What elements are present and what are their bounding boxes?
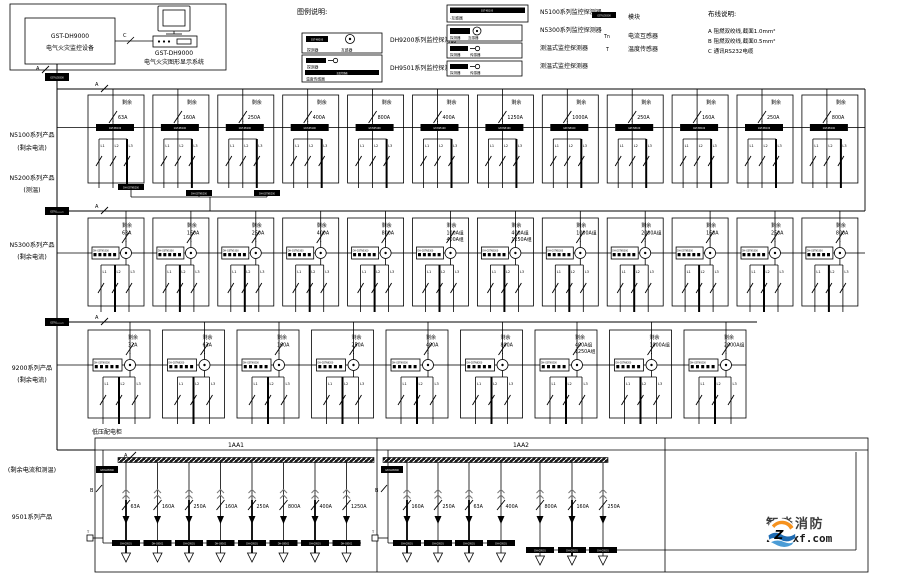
- phase-label: L2: [699, 144, 703, 148]
- side-label: (测温): [23, 186, 40, 194]
- dip-switch: [190, 365, 193, 368]
- phase-label: L3: [778, 144, 782, 148]
- bus-arrow-label: A: [95, 82, 99, 88]
- ct-symbol: Tn: [603, 34, 610, 40]
- wiring-notes-title: 布线说明:: [708, 9, 736, 18]
- device-amp: 1250A: [507, 115, 523, 121]
- device-tag: 剩余: [252, 99, 262, 106]
- dip-switch: [110, 365, 113, 368]
- device-amp: 400A: [313, 115, 326, 121]
- legend-caption: 互感器: [341, 48, 353, 53]
- down-arrow-icon: [569, 516, 576, 524]
- device-tag: 剩余: [426, 334, 436, 341]
- busbar: [118, 458, 374, 463]
- dip-switch: [168, 253, 171, 256]
- load-arrow-icon: [568, 556, 577, 565]
- dip-switch: [163, 253, 166, 256]
- dip-switch: [324, 365, 327, 368]
- branch-device-text: DH-G9501: [534, 549, 546, 552]
- load-arrow-icon: [403, 553, 412, 562]
- legend-bar-text: 温度传感器: [337, 71, 349, 75]
- phase-label: L2: [828, 144, 832, 148]
- ct-bar-text: GST-N5100: [628, 127, 641, 130]
- phase-label: L3: [137, 382, 141, 386]
- legend-label: DH9501系列监控探测器: [390, 64, 456, 72]
- ct-dot: [125, 252, 127, 254]
- watermark: Z 智淼消防 zmjaxf.com: [766, 518, 832, 545]
- device-amp: 160A: [183, 115, 196, 121]
- dip-switch: [547, 365, 550, 368]
- branch-device-text: DH-G9501: [309, 542, 321, 545]
- phase-label: L3: [211, 382, 215, 386]
- dip-switch: [567, 253, 570, 256]
- ct-bar-text: GST-N5100: [304, 127, 317, 130]
- phase-label: L2: [311, 270, 315, 274]
- load-arrow-icon: [465, 553, 474, 562]
- branch-device-text: DH-G9501: [120, 542, 132, 545]
- dip-switch: [308, 253, 311, 256]
- side-label: N5100系列产品: [9, 131, 54, 139]
- dip-switch: [293, 253, 296, 256]
- schematic-page: GST-DH9000 电气火灾监控设备 C GST-DH9000 电气火灾图形显…: [0, 0, 904, 578]
- down-arrow-icon: [498, 516, 505, 524]
- dip-switch: [158, 253, 161, 256]
- dip-switch: [408, 365, 411, 368]
- n5200-bar-text: DH-GSTN5200: [259, 192, 275, 195]
- device-amp: 800A: [378, 115, 391, 121]
- phase-label: L1: [552, 382, 556, 386]
- side-label: (剩余电流): [17, 376, 47, 384]
- phase-label: L3: [195, 270, 199, 274]
- phase-label: L3: [388, 144, 392, 148]
- device-tag: 剩余: [447, 222, 457, 229]
- ct-dot: [449, 252, 451, 254]
- dip-switch: [613, 253, 616, 256]
- bus-arrow-label: A: [124, 453, 128, 459]
- load-arrow-icon: [434, 553, 443, 562]
- device-amp: 250A: [248, 115, 261, 121]
- device-amp: 250A: [637, 115, 650, 121]
- dip-switch: [303, 253, 306, 256]
- addr-device-text: DH-GSTN9200: [169, 362, 185, 365]
- branch-amp: 400A: [506, 504, 519, 510]
- phase-label: L3: [713, 144, 717, 148]
- branch-amp: 250A: [194, 504, 207, 510]
- phase-label: L3: [435, 382, 439, 386]
- ct-dot: [190, 252, 192, 254]
- phase-label: L3: [286, 382, 290, 386]
- dip-switch: [503, 253, 506, 256]
- dip-switch: [339, 365, 342, 368]
- legend-caption: 传感器: [470, 52, 481, 57]
- branch-amp: 800A: [288, 504, 301, 510]
- ct-bar-text: GST-N5100: [239, 127, 252, 130]
- down-arrow-icon: [154, 516, 161, 524]
- phase-label: L2: [701, 270, 705, 274]
- device-tag: 剩余: [277, 334, 287, 341]
- device-tag: 剩余: [382, 222, 392, 229]
- dip-switch: [812, 253, 815, 256]
- branch-amp: 160A: [162, 504, 175, 510]
- phase-label: L2: [441, 270, 445, 274]
- ct-bar-text: GST-N5100: [758, 127, 771, 130]
- ct-dot: [576, 364, 578, 366]
- ct-dot: [384, 252, 386, 254]
- phase-label: L3: [390, 270, 394, 274]
- dip-switch: [94, 253, 97, 256]
- device-tag: 剩余: [771, 222, 781, 229]
- legend-symbols: GST-LD8300 模块 Tn 电流互感器 T 温度传感器: [592, 12, 658, 53]
- device-amp: 400A组: [511, 230, 528, 237]
- legend-caption: 探测器: [450, 35, 461, 40]
- branch-device-text: DH-G9501: [341, 542, 353, 545]
- dip-switch: [103, 253, 106, 256]
- branch-amp: 1250A: [351, 504, 367, 510]
- phase-label: L3: [585, 270, 589, 274]
- addr-device-text: DH-GSTN9200: [318, 362, 334, 365]
- device-amp: 800A: [832, 115, 845, 121]
- side-label: (剩余电流和测温): [8, 466, 56, 474]
- ct-dot: [255, 252, 257, 254]
- branch-amp: 250A: [443, 504, 456, 510]
- temp-sensor-label: T: [86, 530, 90, 534]
- load-arrow-icon: [279, 553, 288, 562]
- legend-label: DH9200系列监控探测器: [390, 36, 456, 44]
- dip-switch: [558, 253, 561, 256]
- dip-switch: [178, 253, 181, 256]
- phase-label: L1: [101, 144, 105, 148]
- device-tag: 剩余: [575, 334, 585, 341]
- watermark-logo-icon: Z: [766, 518, 796, 548]
- phase-label: L2: [439, 144, 443, 148]
- panel-module-text: GST-LD8300: [385, 469, 399, 472]
- panel-module-text: GST-LD8300: [100, 469, 114, 472]
- device-tag: 剩余: [128, 334, 138, 341]
- dip-switch: [627, 253, 630, 256]
- branch-device-text: DH-G9501: [152, 542, 164, 545]
- wiring-note-b: B 阻燃双绞线,截面0.5mm²: [708, 37, 775, 45]
- phase-label: L3: [131, 270, 135, 274]
- legend-caption: 探测器: [307, 65, 319, 70]
- phase-label: L3: [658, 382, 662, 386]
- phase-label: L1: [360, 144, 364, 148]
- branch-device-text: DH-G9501: [495, 542, 507, 545]
- wire-label: B: [90, 488, 94, 494]
- phase-label: L1: [490, 144, 494, 148]
- legend-item-dh9200: GST-N9200 探测器 互感器 DH9200系列监控探测器: [302, 33, 456, 53]
- dip-switch: [616, 365, 619, 368]
- phase-label: L3: [325, 270, 329, 274]
- branch-device-text: DH-G9501: [566, 549, 578, 552]
- addr-device-text: DH-GSTN9200: [541, 362, 557, 365]
- device-tag: 剩余: [724, 334, 734, 341]
- dip-switch: [373, 253, 376, 256]
- ct-dot: [129, 364, 131, 366]
- legend-item-n5100: GST-N5100 -互感器 N5100系列监控探测器: [447, 5, 602, 22]
- phase-label: L3: [260, 270, 264, 274]
- load-arrow-icon: [311, 553, 320, 562]
- dip-switch: [747, 253, 750, 256]
- dip-switch: [334, 365, 337, 368]
- controller-box: [25, 18, 115, 64]
- addr-device-text: DH-GSTN5300: [807, 250, 823, 253]
- ct-dot: [320, 252, 322, 254]
- dip-switch: [403, 365, 406, 368]
- controller-desc: 电气火灾监控设备: [46, 44, 94, 52]
- dip-switch: [552, 365, 555, 368]
- device-tag: 剩余: [317, 222, 327, 229]
- branch-amp: 400A: [320, 504, 333, 510]
- ct-dot: [278, 364, 280, 366]
- dip-switch: [632, 253, 635, 256]
- phase-label: L1: [295, 144, 299, 148]
- branch-device-text: DH-G9501: [432, 542, 444, 545]
- device-tag: 剩余: [203, 334, 213, 341]
- down-arrow-icon: [343, 516, 350, 524]
- phase-label: L2: [569, 144, 573, 148]
- phase-label: L2: [195, 382, 199, 386]
- branch-amp: 800A: [545, 504, 558, 510]
- dip-switch: [175, 365, 178, 368]
- phase-label: L3: [520, 270, 524, 274]
- n5200-bar-text: DH-GSTN5200: [191, 192, 207, 195]
- device-tag: 剩余: [771, 99, 781, 106]
- display-desc: 电气火灾图形显示系统: [144, 58, 204, 66]
- phase-label: L2: [571, 270, 575, 274]
- phase-label: L1: [477, 382, 481, 386]
- bus-arrow-label: A: [95, 204, 99, 210]
- phase-label: L1: [105, 382, 109, 386]
- side-label: N5200系列产品: [9, 174, 54, 182]
- phase-label: L1: [362, 270, 366, 274]
- side-label: 9200系列产品: [12, 364, 53, 372]
- dip-switch: [696, 365, 699, 368]
- phase-label: L1: [687, 270, 691, 274]
- phase-label: L2: [493, 382, 497, 386]
- phase-label: L1: [816, 270, 820, 274]
- device-tag: 剩余: [352, 334, 362, 341]
- dip-switch: [488, 365, 491, 368]
- dip-switch: [180, 365, 183, 368]
- device-tag: 剩余: [382, 99, 392, 106]
- down-arrow-icon: [280, 516, 287, 524]
- load-arrow-icon: [599, 556, 608, 565]
- addr-device-text: DH-GSTN5300: [612, 250, 628, 253]
- device-amp: 100A组: [447, 230, 464, 237]
- legend-caption: 探测器: [450, 52, 461, 57]
- dip-switch: [113, 253, 116, 256]
- branch-device-text: DH-G9501: [597, 549, 609, 552]
- load-arrow-icon: [536, 556, 545, 565]
- device-amp: 400A: [443, 115, 456, 121]
- dip-switch: [678, 253, 681, 256]
- dip-switch: [563, 365, 566, 368]
- ct-dot: [650, 364, 652, 366]
- phase-label: L1: [555, 144, 559, 148]
- phase-label: L2: [309, 144, 313, 148]
- dip-switch: [428, 253, 431, 256]
- dip-switch: [244, 365, 247, 368]
- phase-label: L1: [232, 270, 236, 274]
- wire-tick: [96, 485, 102, 492]
- temp-sensor-box: [87, 535, 93, 541]
- computer-icon: [153, 6, 197, 47]
- branch-device-text: DH-G9501: [215, 542, 227, 545]
- dip-switch: [563, 253, 566, 256]
- dip-switch: [368, 253, 371, 256]
- ct-dot: [514, 252, 516, 254]
- side-label: N5300系列产品: [9, 241, 54, 249]
- phase-label: L3: [360, 382, 364, 386]
- branch-device-text: DH-G9501: [246, 542, 258, 545]
- phase-label: L1: [179, 382, 183, 386]
- phase-label: L1: [103, 270, 107, 274]
- wire-label: B: [375, 488, 379, 494]
- phase-label: L3: [258, 144, 262, 148]
- dip-switch: [483, 253, 486, 256]
- legend-caption: 探测器: [307, 48, 319, 53]
- phase-label: L2: [181, 270, 185, 274]
- down-arrow-icon: [186, 516, 193, 524]
- addr-device-text: DH-GSTN5300: [677, 250, 693, 253]
- phase-label: L1: [814, 144, 818, 148]
- ct-bar-text: GST-N5100: [823, 127, 836, 130]
- dip-switch: [223, 253, 226, 256]
- phase-label: L1: [425, 144, 429, 148]
- panel-title: 1AA1: [228, 442, 244, 449]
- load-arrow-icon: [122, 553, 131, 562]
- phase-label: L3: [509, 382, 513, 386]
- ct-dot: [839, 252, 841, 254]
- phase-label: L1: [626, 382, 630, 386]
- phase-label: L3: [129, 144, 133, 148]
- legend-label: 测温式监控探测器: [540, 62, 588, 70]
- device-tag: 剩余: [511, 99, 521, 106]
- dip-switch: [827, 253, 830, 256]
- phase-label: L2: [504, 144, 508, 148]
- wiring-note-a: A 阻燃双绞线,截面1.0mm²: [708, 27, 775, 35]
- dip-switch: [488, 253, 491, 256]
- phase-label: L2: [115, 144, 119, 148]
- phase-label: L1: [427, 270, 431, 274]
- legend-bar-text: GST-LD8300: [597, 15, 611, 18]
- comm-wire-label: C: [123, 33, 127, 39]
- controller-block: GST-DH9000 电气火灾监控设备 C GST-DH9000 电气火灾图形显…: [10, 4, 226, 70]
- ct-dot: [725, 364, 727, 366]
- legend-label: 模块: [628, 13, 640, 21]
- dip-switch: [807, 253, 810, 256]
- device-amp: 1000A组: [576, 230, 596, 237]
- dip-switch: [318, 365, 321, 368]
- dip-switch: [329, 365, 332, 368]
- dip-switch: [632, 365, 635, 368]
- phase-label: L3: [733, 382, 737, 386]
- phase-label: L1: [752, 270, 756, 274]
- phase-label: L2: [117, 270, 121, 274]
- ct-dot: [203, 364, 205, 366]
- dip-switch: [627, 365, 630, 368]
- wire-tick: [381, 485, 387, 492]
- branch-amp: 160A: [225, 504, 238, 510]
- dip-switch: [185, 365, 188, 368]
- legend-label: N5300系列监控探测器: [540, 26, 602, 34]
- device-tag: 剩余: [836, 222, 846, 229]
- branch-amp: 250A: [257, 504, 270, 510]
- legend-label: 测温式监控探测器: [540, 44, 588, 52]
- dip-switch: [623, 253, 626, 256]
- dip-switch: [542, 365, 545, 368]
- phase-label: L2: [636, 270, 640, 274]
- legend-bar-text: GST-N5100: [481, 10, 494, 13]
- dip-switch: [618, 253, 621, 256]
- phase-label: L2: [121, 382, 125, 386]
- dip-switch: [692, 253, 695, 256]
- bus-arrow-tick: [101, 85, 108, 92]
- controller-name: GST-DH9000: [51, 33, 89, 40]
- phase-label: L3: [780, 270, 784, 274]
- dip-switch: [243, 253, 246, 256]
- down-arrow-icon: [312, 516, 319, 524]
- load-arrow-icon: [248, 553, 257, 562]
- ct-dot: [352, 364, 354, 366]
- device-tag: 剩余: [706, 99, 716, 106]
- dip-switch: [108, 253, 111, 256]
- dip-switch: [622, 365, 625, 368]
- load-arrow-icon: [216, 553, 225, 562]
- dip-switch: [173, 253, 176, 256]
- trunk-module-text: GST-LD8300: [50, 77, 64, 80]
- dip-switch: [414, 365, 417, 368]
- device-amp: 1250A组: [511, 236, 531, 243]
- bus-arrow-label: A: [95, 315, 99, 321]
- device-amp: 1250A组: [575, 348, 595, 355]
- dip-switch: [691, 365, 694, 368]
- phase-label: L1: [165, 144, 169, 148]
- legend-item-dh9501: 探测器 温度传感器 温度传感器 DH9501系列监控探测器: [302, 55, 456, 82]
- phase-label: L2: [244, 144, 248, 148]
- side-label: 9501系列产品: [12, 513, 53, 521]
- ct-dot: [644, 252, 646, 254]
- down-arrow-icon: [404, 516, 411, 524]
- phase-label: L1: [750, 144, 754, 148]
- dip-switch: [100, 365, 103, 368]
- phase-label: L2: [246, 270, 250, 274]
- ct-bar-text: GST-N5100: [563, 127, 576, 130]
- dip-switch: [557, 365, 560, 368]
- phase-label: L3: [455, 270, 459, 274]
- dip-switch: [438, 253, 441, 256]
- device-tag: 剩余: [187, 99, 197, 106]
- device-tag: 剩余: [641, 222, 651, 229]
- down-arrow-icon: [466, 516, 473, 524]
- phase-label: L1: [622, 270, 626, 274]
- dip-switch: [418, 253, 421, 256]
- dip-switch: [358, 253, 361, 256]
- dip-switch: [423, 253, 426, 256]
- phase-label: L1: [254, 382, 258, 386]
- dip-switch: [254, 365, 257, 368]
- dip-switch: [95, 365, 98, 368]
- cabinet-label: 低压配电柜: [92, 428, 122, 436]
- generated-schematic: GST-LD8300GST-LD8300GST-LD8300AAAAN5100系…: [8, 64, 868, 572]
- device-amp: 2000A组: [641, 230, 661, 237]
- ct-dot: [501, 364, 503, 366]
- phase-label: L3: [193, 144, 197, 148]
- down-arrow-icon: [123, 516, 130, 524]
- addr-device-text: DH-GSTN5300: [353, 250, 369, 253]
- device-tag: 剩余: [447, 99, 457, 106]
- phase-label: L2: [376, 270, 380, 274]
